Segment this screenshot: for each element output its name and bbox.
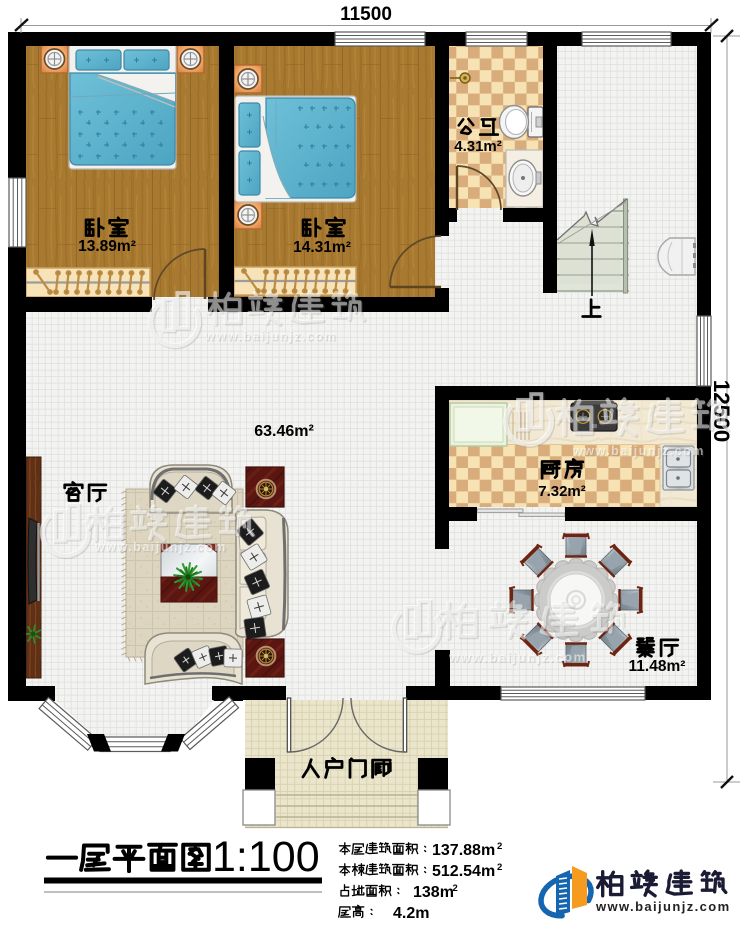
svg-text:7.32m²: 7.32m² [538, 483, 586, 500]
svg-text:www.baijunjz.com: www.baijunjz.com [572, 444, 705, 458]
svg-text:www.baijunjz.com: www.baijunjz.com [595, 899, 731, 914]
svg-text:www.baijunjz.com: www.baijunjz.com [448, 650, 587, 665]
svg-text:4.31m²: 4.31m² [454, 138, 502, 155]
svg-text:www.baijunjz.com: www.baijunjz.com [204, 329, 337, 343]
svg-text:2: 2 [453, 883, 458, 894]
svg-text:11500: 11500 [340, 4, 392, 25]
svg-text:63.46m²: 63.46m² [254, 423, 314, 440]
svg-text:13.89m²: 13.89m² [78, 238, 136, 255]
svg-text:11.48m²: 11.48m² [629, 658, 686, 675]
svg-text:138m: 138m [413, 884, 454, 901]
svg-text:2: 2 [497, 841, 502, 852]
svg-text:14.31m²: 14.31m² [293, 239, 351, 256]
svg-text:1:100: 1:100 [212, 833, 320, 881]
svg-text:www.baijunjz.com: www.baijunjz.com [94, 540, 227, 554]
svg-text:512.54m: 512.54m [432, 863, 495, 880]
svg-text:2: 2 [497, 862, 502, 873]
svg-text:137.88m: 137.88m [432, 842, 495, 859]
svg-text:4.2m: 4.2m [393, 905, 429, 922]
